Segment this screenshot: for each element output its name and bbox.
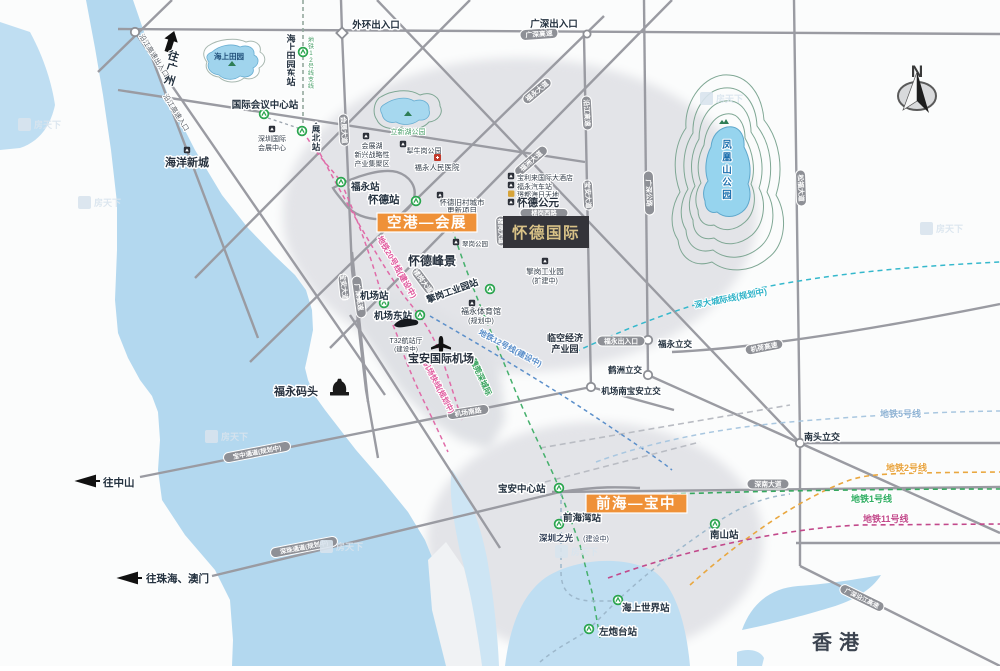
svg-text:产业集聚区: 产业集聚区 (355, 159, 390, 168)
svg-text:临空经济: 临空经济 (547, 332, 584, 343)
svg-text:前海湾站: 前海湾站 (563, 512, 602, 524)
svg-text:广深出入口: 广深出入口 (530, 18, 578, 30)
svg-text:左炮台站: 左炮台站 (598, 626, 638, 638)
svg-text:房天下: 房天下 (716, 93, 743, 104)
svg-text:深圳国际: 深圳国际 (258, 134, 286, 143)
svg-text:海上田园: 海上田园 (214, 51, 244, 61)
svg-text:房天下: 房天下 (336, 541, 363, 552)
svg-text:福永人民医院: 福永人民医院 (415, 162, 460, 172)
svg-text:(规划中): (规划中) (468, 316, 494, 325)
svg-text:擎岗工业园: 擎岗工业园 (526, 266, 564, 276)
svg-text:(扩建中): (扩建中) (532, 276, 558, 285)
svg-text:怀德国际: 怀德国际 (512, 223, 580, 242)
svg-text:地铁2号线: 地铁2号线 (886, 462, 927, 473)
svg-text:海上世界站: 海上世界站 (622, 602, 670, 614)
svg-text:房天下: 房天下 (221, 431, 248, 442)
svg-text:福永汽车站: 福永汽车站 (517, 182, 552, 191)
svg-text:福永出入口: 福永出入口 (603, 336, 638, 345)
svg-text:会展湖: 会展湖 (362, 141, 383, 150)
svg-text:深圳之光: 深圳之光 (539, 533, 574, 543)
svg-text:海洋新城: 海洋新城 (165, 155, 209, 169)
svg-text:(建设中): (建设中) (394, 344, 418, 353)
svg-text:鹤洲立交: 鹤洲立交 (608, 365, 643, 375)
svg-text:房天下: 房天下 (936, 223, 963, 234)
svg-text:地铁11号线: 地铁11号线 (863, 513, 909, 524)
svg-text:犁牛岗公园: 犁牛岗公园 (407, 146, 442, 155)
svg-text:宝安中心站: 宝安中心站 (498, 483, 546, 495)
svg-text:会展北站: 会展北站 (311, 122, 321, 152)
svg-text:往中山: 往中山 (103, 476, 135, 489)
svg-text:宝利来国际大酒店: 宝利来国际大酒店 (517, 173, 573, 182)
svg-text:新兴战略性: 新兴战略性 (355, 150, 390, 159)
svg-text:海上田园东站: 海上田园东站 (286, 33, 295, 87)
svg-text:地铁1号线: 地铁1号线 (851, 493, 892, 504)
svg-text:房天下: 房天下 (571, 546, 598, 557)
svg-text:宝安国际机场: 宝安国际机场 (408, 351, 474, 365)
svg-text:国际会议中心站: 国际会议中心站 (232, 99, 299, 111)
svg-text:T32航站厅: T32航站厅 (389, 336, 422, 345)
svg-text:空港—会展: 空港—会展 (387, 214, 467, 232)
svg-text:外环出入口: 外环出入口 (351, 19, 400, 31)
svg-text:翠岗公园: 翠岗公园 (462, 240, 488, 248)
svg-text:福永体育馆: 福永体育馆 (461, 306, 501, 316)
svg-text:福永码头: 福永码头 (273, 384, 318, 398)
svg-text:房天下: 房天下 (34, 119, 61, 130)
svg-text:往珠海、澳门: 往珠海、澳门 (146, 572, 209, 585)
svg-text:南山站: 南山站 (710, 529, 739, 541)
svg-text:地铁5号线: 地铁5号线 (880, 408, 921, 419)
svg-text:怀德公元: 怀德公元 (517, 196, 559, 209)
svg-text:产业园: 产业园 (551, 343, 578, 354)
svg-text:地铁12号线支线: 地铁12号线支线 (308, 36, 314, 90)
svg-text:前海—宝中: 前海—宝中 (596, 495, 676, 513)
svg-text:机场站: 机场站 (360, 290, 389, 302)
svg-text:(建设中): (建设中) (583, 534, 609, 543)
svg-text:凤凰山公园: 凤凰山公园 (722, 140, 732, 201)
svg-text:怀德站: 怀德站 (368, 193, 400, 206)
svg-text:福永立交: 福永立交 (657, 339, 693, 349)
svg-text:福永站: 福永站 (350, 181, 380, 193)
svg-text:机场南宝安立交: 机场南宝安立交 (601, 386, 661, 396)
svg-text:房天下: 房天下 (94, 197, 121, 208)
svg-text:立新湖公园: 立新湖公园 (391, 127, 426, 136)
svg-text:南头立交: 南头立交 (804, 431, 840, 442)
svg-text:香港: 香港 (812, 630, 866, 654)
svg-text:怀德峰景: 怀德峰景 (408, 253, 456, 268)
svg-text:楼岗西路: 楼岗西路 (531, 208, 557, 217)
svg-text:会展中心: 会展中心 (258, 143, 286, 152)
svg-text:深南大道: 深南大道 (754, 479, 781, 488)
